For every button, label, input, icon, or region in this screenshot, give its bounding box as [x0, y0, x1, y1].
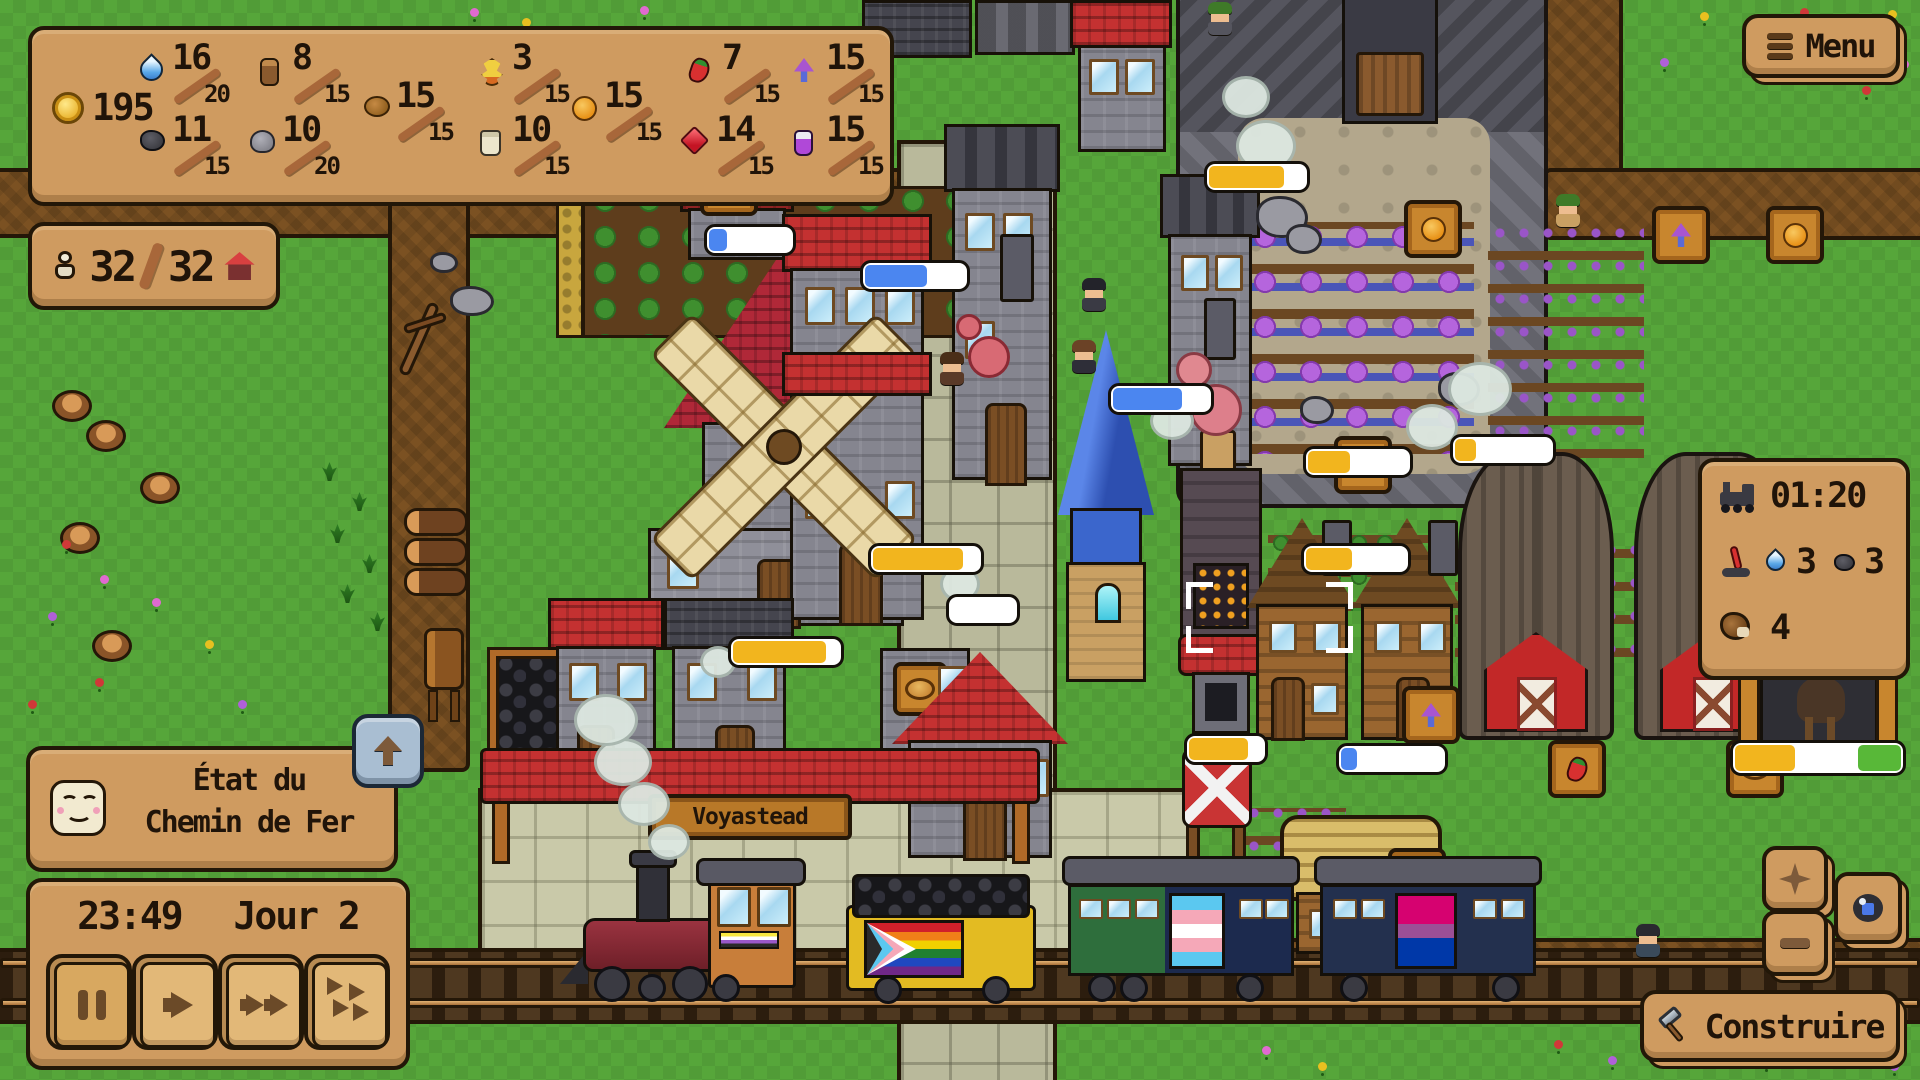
tree-stump: [140, 472, 180, 504]
bisexual-flag-panel: [1395, 893, 1457, 969]
clock-panel: 23:49 Jour 2: [26, 878, 410, 1070]
sapling: [352, 492, 367, 511]
resource-purple-mushroom: 1515: [794, 46, 906, 120]
resource-stone: 1020: [250, 118, 362, 192]
progress-bar: [704, 224, 796, 256]
tree-stump: [86, 420, 126, 452]
pause-button[interactable]: [46, 954, 132, 1050]
villager[interactable]: [1072, 340, 1096, 373]
train-cargo-count: 4: [1770, 608, 1789, 648]
tree-stump: [92, 630, 132, 662]
sapling: [362, 554, 377, 573]
well[interactable]: [1192, 672, 1250, 734]
locomotive-cab[interactable]: [708, 872, 796, 988]
house-icon: [225, 252, 255, 280]
station-house-roof: [548, 598, 664, 650]
saddlebag-icon: [1720, 612, 1750, 640]
minus-icon: [1780, 938, 1810, 948]
car-roof: [1062, 856, 1300, 886]
selection-bracket: [1326, 582, 1353, 609]
clock-day: Jour 2: [233, 894, 358, 938]
expand-railroad-button[interactable]: [352, 714, 424, 788]
wheel: [1088, 974, 1116, 1002]
camera-icon: [1851, 893, 1885, 923]
cab-roof: [696, 858, 806, 886]
villager[interactable]: [1636, 924, 1660, 957]
house-top-right[interactable]: [1078, 36, 1166, 152]
canopy-post: [1012, 800, 1030, 864]
wheel: [874, 976, 902, 1004]
trans-flag-door: [1169, 893, 1225, 969]
play-button[interactable]: [132, 954, 218, 1050]
purple-mushroom-icon: [1671, 223, 1691, 247]
resource-potion: 1515: [794, 118, 906, 192]
progress-bar: [946, 594, 1020, 626]
farmer[interactable]: [1556, 194, 1580, 227]
wheel: [712, 974, 740, 1002]
smoke-puff: [1448, 362, 1512, 416]
tree-stump: [52, 390, 92, 422]
canopy-post: [492, 800, 510, 864]
fruit-icon: [1421, 217, 1446, 242]
water-drop-icon: [1762, 548, 1789, 575]
water-drop-icon: [135, 53, 168, 86]
farm-sign[interactable]: [1404, 200, 1462, 258]
selection-bracket: [1186, 626, 1213, 653]
rock: [450, 286, 494, 316]
fruit-icon: [1783, 223, 1808, 248]
tree-stump: [60, 522, 100, 554]
camera-button[interactable]: [1834, 872, 1902, 944]
cabin[interactable]: [1256, 604, 1348, 740]
progress-bar: [1301, 543, 1411, 575]
car-roof: [1314, 856, 1542, 886]
progress-bar: [1108, 383, 1214, 415]
tall-house-mid-roof: [782, 352, 932, 396]
selection-bracket: [1186, 582, 1213, 609]
progress-bar: [868, 543, 984, 575]
miner[interactable]: [1208, 2, 1232, 35]
sapling: [330, 524, 345, 543]
slash-divider: [138, 242, 164, 291]
wheel: [1492, 974, 1520, 1002]
passenger-car[interactable]: [1320, 884, 1536, 976]
farm-sign[interactable]: [1652, 206, 1710, 264]
bread-icon: [905, 678, 935, 700]
log-pile[interactable]: [404, 508, 472, 604]
barn[interactable]: [1458, 452, 1614, 740]
mine-rock: [1300, 396, 1334, 424]
hammer-icon: [1657, 1009, 1691, 1043]
triple-arrow-icon: [312, 962, 388, 1048]
clock-time: 23:49: [77, 894, 181, 938]
clay-icon: [364, 96, 390, 117]
play-icon: [140, 962, 216, 1048]
windmill-hub: [766, 429, 802, 465]
log-icon: [260, 58, 279, 86]
locomotive-icon: [1720, 482, 1760, 512]
diamond-plus-icon: [1779, 863, 1811, 895]
railroad-status-panel[interactable]: État du Chemin de Fer: [26, 746, 398, 872]
resource-log: 815: [260, 46, 372, 120]
sapling: [340, 584, 355, 603]
rock: [430, 252, 458, 273]
build-label: Construire: [1705, 1007, 1884, 1046]
population-panel: 32 32: [28, 222, 280, 310]
population-max: 32: [168, 242, 213, 291]
train-info-panel: 01:20 3 3 4: [1698, 458, 1910, 680]
steam-puff: [618, 782, 670, 826]
church-tower[interactable]: [1070, 508, 1142, 568]
hops-icon: [480, 58, 504, 86]
farm-sign[interactable]: [1402, 686, 1460, 744]
zoom-in-button[interactable]: [1762, 846, 1828, 912]
balloon: [968, 336, 1010, 378]
mine-hopper: [1356, 52, 1424, 116]
stone-wall-top[interactable]: [975, 0, 1075, 55]
wheel: [1340, 974, 1368, 1002]
wheel: [1236, 974, 1264, 1002]
stone-icon: [250, 130, 275, 153]
progress-bar: [1303, 446, 1413, 478]
train-arrival-time: 01:20: [1770, 476, 1865, 516]
smoke-puff: [1222, 76, 1270, 118]
church[interactable]: [1066, 562, 1146, 682]
selection-bracket: [1326, 626, 1353, 653]
villager[interactable]: [940, 352, 964, 385]
coal-icon: [140, 130, 165, 151]
mine-rock: [1286, 224, 1322, 254]
game-viewport[interactable]: Voyastead: [0, 0, 1920, 1080]
chili-pepper-icon: [1564, 754, 1590, 784]
menu-button[interactable]: Menu: [1742, 14, 1900, 78]
zoom-out-button[interactable]: [1762, 910, 1828, 976]
train-water-needed: 3: [1796, 542, 1815, 582]
resource-coal: 1115: [140, 118, 252, 192]
water-barrel-tower[interactable]: [420, 628, 472, 724]
sapling: [322, 462, 337, 481]
fast-forward-button[interactable]: [218, 954, 304, 1050]
progress-bar: [1450, 434, 1556, 466]
hamburger-icon: [1767, 33, 1793, 59]
clock-display: 23:49 Jour 2: [30, 894, 406, 938]
menu-label: Menu: [1805, 27, 1874, 65]
resources-panel: 195 162081531571515151515151511151020101…: [28, 26, 894, 206]
chimney: [1428, 520, 1458, 576]
resource-ruby: 1415: [684, 118, 796, 192]
potion-icon: [794, 130, 813, 156]
ruby-icon: [680, 126, 710, 156]
stone-road-below-track: [897, 1016, 1057, 1080]
chimney: [1204, 298, 1236, 360]
max-speed-button[interactable]: [304, 954, 390, 1050]
tower-left-battlement: [944, 124, 1060, 192]
fast-forward-icon: [226, 962, 302, 1048]
progress-pride-flag: [864, 920, 964, 978]
switch-lever-icon: [1722, 546, 1752, 578]
progress-bar: [1336, 743, 1448, 775]
progress-bar: [728, 636, 844, 668]
railroad-status-line1: État du: [114, 760, 384, 802]
orchard-hedge-left: [556, 186, 584, 338]
flour-sack-icon: [480, 130, 501, 156]
pause-icon: [54, 962, 130, 1048]
resource-water-drop: 1620: [140, 46, 252, 120]
population-current: 32: [89, 242, 134, 291]
progress-bar: [1184, 733, 1268, 765]
wheel: [1120, 974, 1148, 1002]
coal-icon: [1834, 554, 1855, 571]
resource-chili-pepper: 715: [690, 46, 802, 120]
progress-bar: [1204, 161, 1310, 193]
station-sign-text: Voyastead: [692, 804, 808, 830]
railroad-status-line2: Chemin de Fer: [114, 802, 384, 844]
villager-icon: [53, 251, 77, 281]
passenger-car[interactable]: [1068, 884, 1294, 976]
farm-sign[interactable]: [1766, 206, 1824, 264]
wheel: [672, 966, 708, 1002]
locomotive-boiler[interactable]: [583, 918, 725, 972]
villager[interactable]: [1082, 278, 1106, 311]
sapling: [370, 612, 385, 631]
horse-progress-bar: [1730, 740, 1906, 776]
build-button[interactable]: Construire: [1640, 990, 1900, 1062]
steam-puff: [648, 824, 690, 860]
wheel: [982, 976, 1010, 1004]
nonbinary-flag: [719, 931, 779, 949]
up-arrow-icon: [374, 736, 402, 766]
resource-clay: 1515: [364, 84, 476, 158]
purple-mushroom-icon: [794, 58, 814, 82]
steam-puff: [574, 694, 638, 746]
balloon: [956, 314, 982, 340]
house-top-right-roof: [1070, 0, 1172, 48]
happy-face-icon: [50, 780, 106, 836]
resource-flour-sack: 1015: [480, 118, 592, 192]
chili-pepper-icon: [687, 56, 713, 86]
train-coal-needed: 3: [1864, 542, 1883, 582]
barn-sign[interactable]: [1548, 740, 1606, 798]
tender-coal: [852, 874, 1030, 918]
dead-tree: [385, 300, 455, 380]
chimney: [1000, 234, 1034, 302]
wheel: [594, 966, 630, 1002]
progress-bar: [860, 260, 970, 292]
sprout-rows[interactable]: [1488, 228, 1644, 458]
purple-mushroom-icon: [1421, 703, 1441, 727]
wheel: [638, 974, 666, 1002]
